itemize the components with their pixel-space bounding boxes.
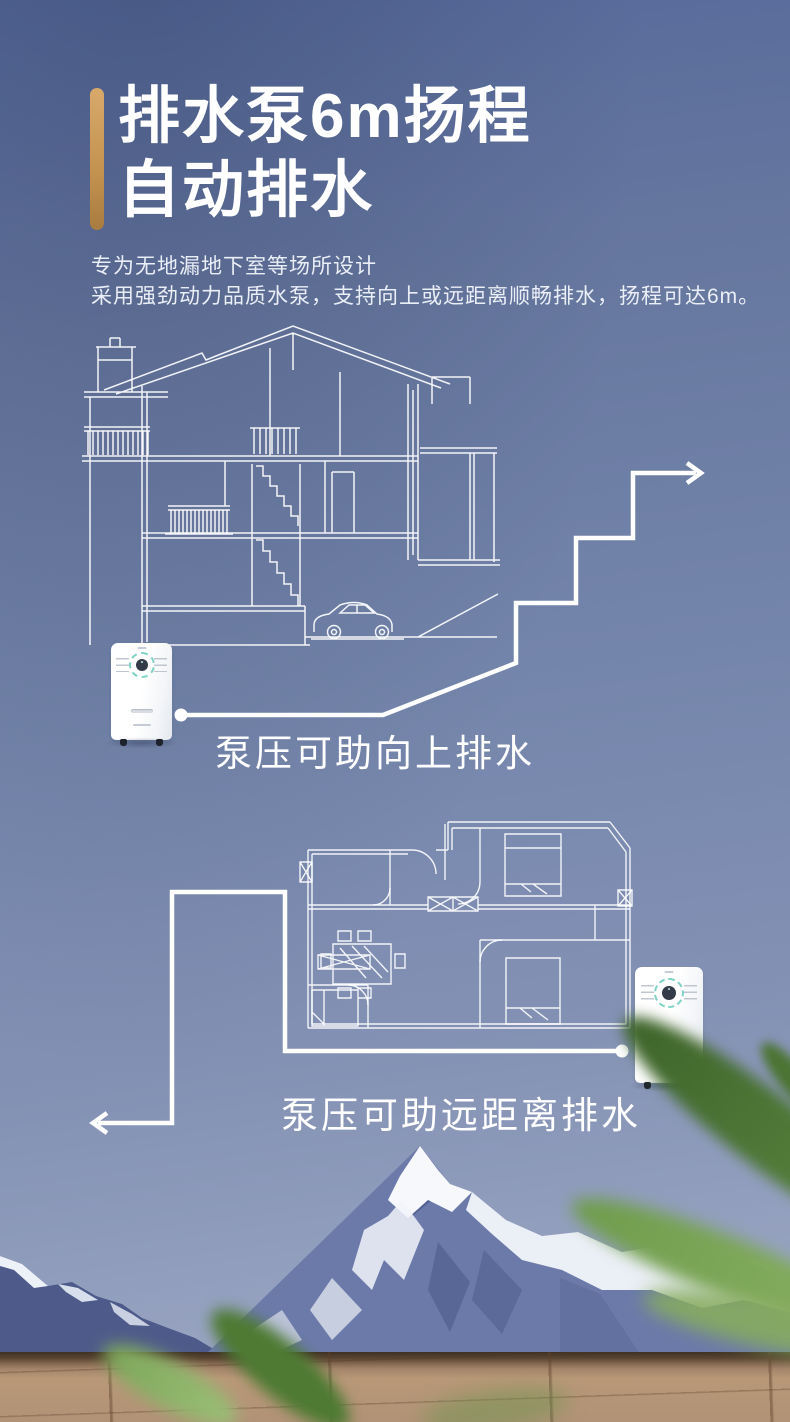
control-dial-icon	[654, 978, 684, 1008]
panel-ticks-right	[684, 985, 697, 1001]
panel-ticks-left	[116, 658, 129, 672]
dehumidifier-body	[111, 643, 172, 740]
dehumidifier-image-1	[111, 643, 172, 740]
upward-drain-caption: 泵压可助向上排水	[215, 723, 535, 777]
panel-ticks-left	[641, 985, 654, 1001]
car-drawing	[311, 603, 404, 640]
distance-drain-caption: 泵压可助远距离排水	[281, 1085, 641, 1139]
house-cross-section-drawing	[82, 326, 500, 645]
floor-plan-drawing	[300, 822, 632, 1028]
caster-wheel	[156, 739, 163, 746]
subtitle-line-2: 采用强劲动力品质水泵，支持向上或远距离顺畅排水，扬程可达6m。	[91, 282, 760, 312]
caster-wheel	[120, 739, 127, 746]
title-line-2: 自动排水	[118, 154, 532, 228]
handle-slot	[131, 709, 153, 713]
floor-plan-door-arcs	[348, 850, 502, 1005]
product-detail-page: 排水泵6m扬程 自动排水 专为无地漏地下室等场所设计 采用强劲动力品质水泵，支持…	[0, 0, 790, 1422]
panel-ticks-right	[154, 658, 167, 672]
title-line-1: 排水泵6m扬程	[118, 80, 532, 154]
power-button-icon	[137, 647, 146, 649]
caster-wheel	[644, 1082, 651, 1089]
connector-dot	[616, 1045, 629, 1058]
upward-drain-flow-line	[175, 463, 702, 722]
brand-mark	[133, 724, 151, 726]
control-dial-icon	[129, 652, 155, 678]
page-title: 排水泵6m扬程 自动排水	[118, 80, 532, 228]
staircase-steps	[256, 466, 298, 606]
power-button-icon	[665, 971, 674, 973]
title-accent-bar	[90, 88, 104, 230]
connector-dot	[175, 709, 188, 722]
subtitle-line-1: 专为无地漏地下室等场所设计	[91, 252, 760, 282]
floor-plan-furniture	[300, 834, 632, 1026]
balcony-balusters	[88, 428, 296, 533]
subtitle: 专为无地漏地下室等场所设计 采用强劲动力品质水泵，支持向上或远距离顺畅排水，扬程…	[91, 252, 760, 312]
